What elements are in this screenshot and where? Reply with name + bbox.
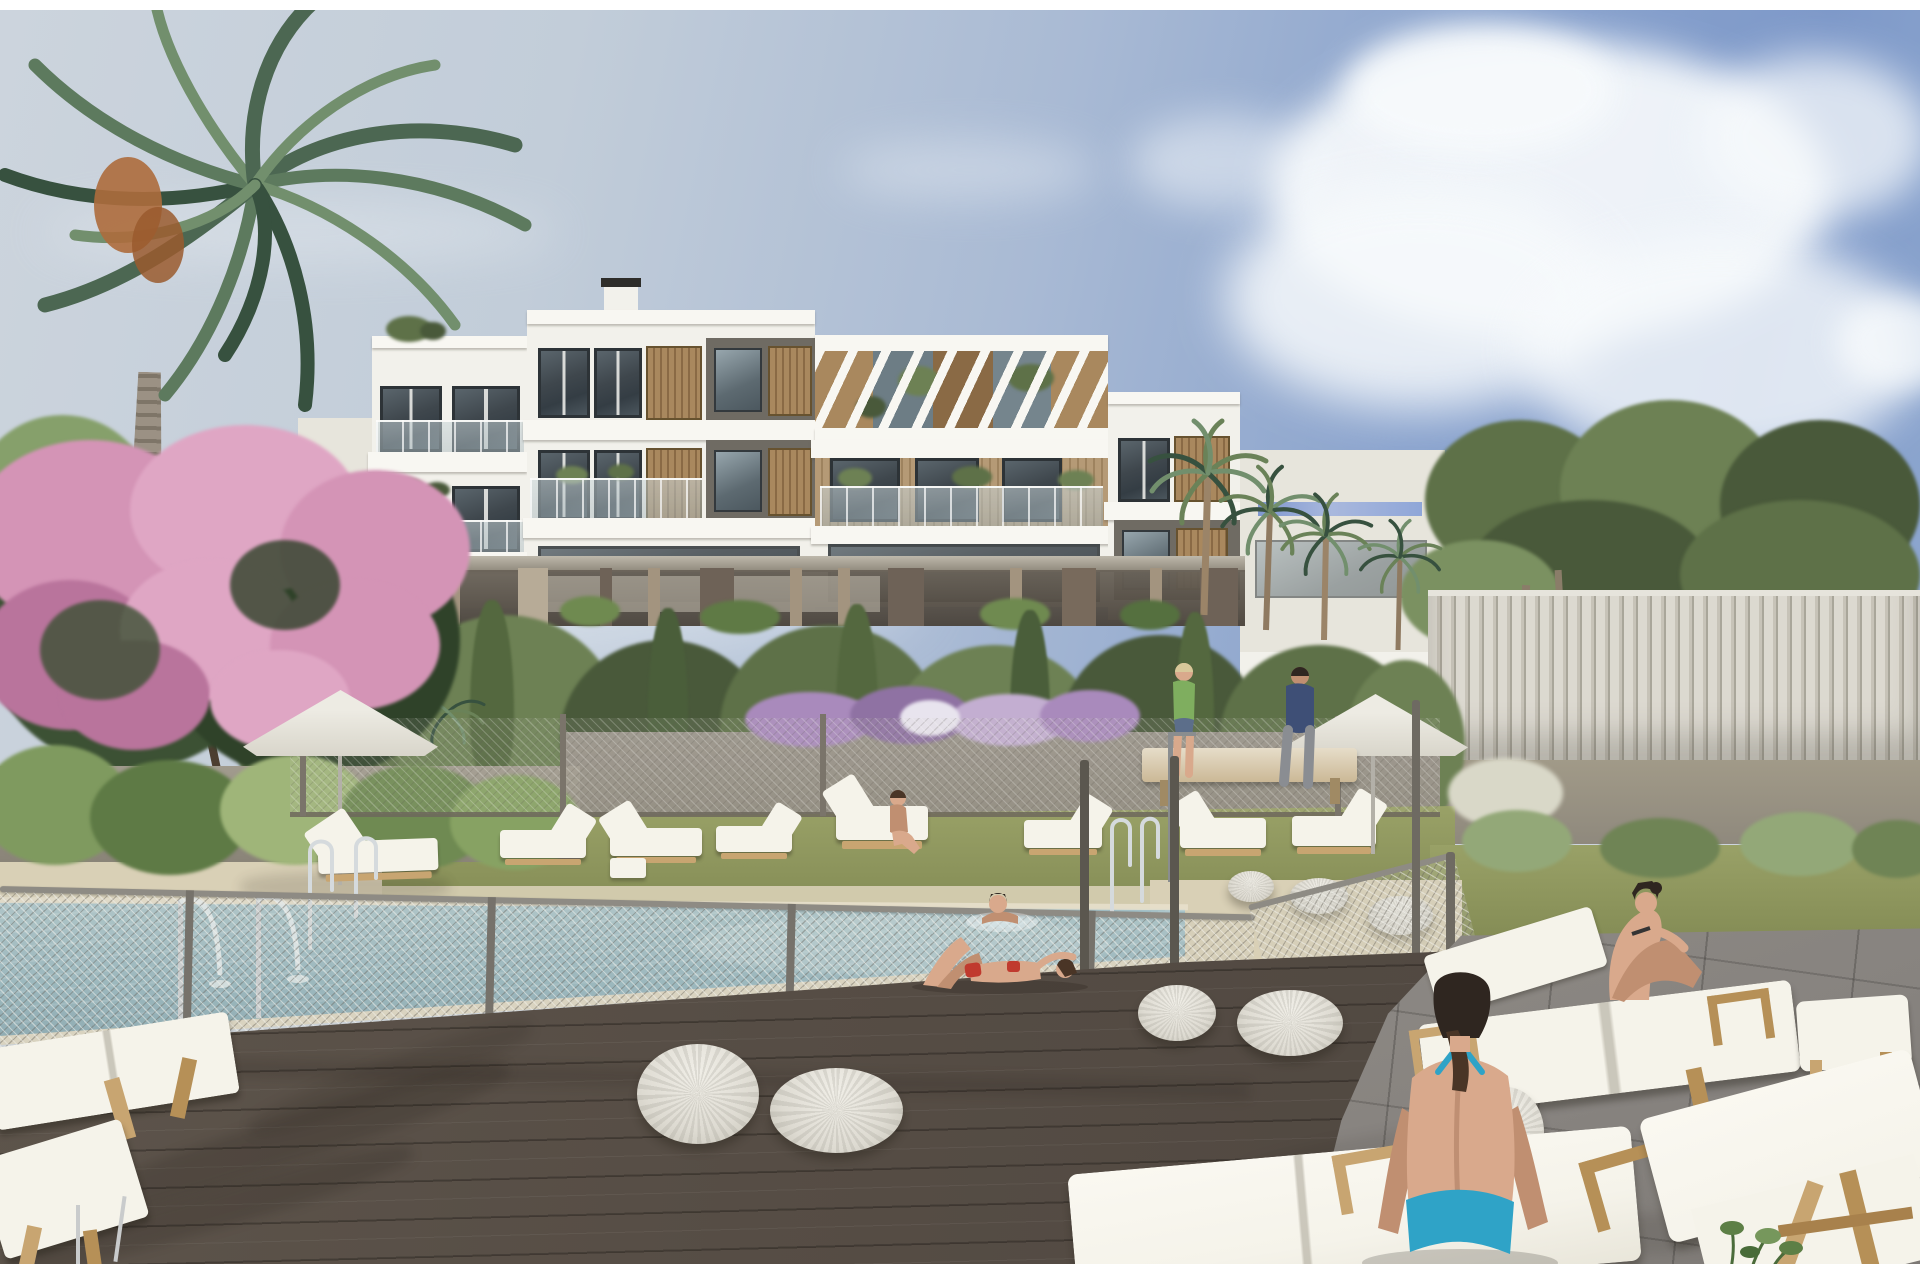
agave-plant <box>1600 818 1720 878</box>
fence-post <box>820 714 826 816</box>
pool-ladder-mid <box>1100 805 1170 925</box>
pergola-rafters <box>815 351 1108 435</box>
floor-band <box>523 518 819 538</box>
person-lying-red-bikini <box>905 915 1095 995</box>
lounger-ottoman <box>610 858 646 878</box>
window <box>714 348 762 412</box>
person-bench-blue <box>1252 662 1342 802</box>
person-bench-green <box>1146 658 1218 798</box>
agave-plant <box>1462 810 1572 872</box>
slat-fence-cap <box>1428 590 1920 596</box>
pergola-top-beam <box>815 335 1108 351</box>
palm-tree-left <box>0 0 720 500</box>
pergola-bottom-beam <box>815 428 1108 440</box>
fence-post <box>560 714 566 816</box>
shower-arm <box>1168 732 1196 736</box>
balcony-railing <box>820 486 1103 528</box>
poolside-render-scene <box>0 0 1920 1280</box>
sun-lounger <box>610 828 702 856</box>
balcony-plant <box>838 468 872 488</box>
pillar <box>888 568 924 626</box>
woven-pouf <box>770 1068 903 1153</box>
wood-slat-panel <box>768 448 812 516</box>
ground-shrub <box>560 596 620 626</box>
parapet <box>1108 392 1240 404</box>
woven-pouf <box>1138 985 1216 1041</box>
sun-lounger <box>1180 818 1266 848</box>
cloud <box>1700 55 1920 220</box>
top-white-strip <box>0 0 1920 10</box>
pillar <box>790 568 802 626</box>
woven-pouf <box>1228 871 1274 902</box>
bottom-white-strip <box>0 1264 1920 1280</box>
bougainvillea-foliage <box>40 600 160 700</box>
person-kneehug <box>1552 876 1717 1016</box>
lounger-arm-wood <box>1707 988 1775 1046</box>
woven-pouf <box>637 1044 759 1144</box>
sun-lounger <box>500 830 586 858</box>
floor-band <box>811 440 1112 458</box>
window <box>714 450 762 512</box>
sun-lounger <box>716 826 792 852</box>
slat-fence-panel <box>1428 592 1920 764</box>
sun-lounger <box>1292 816 1376 846</box>
bougainvillea-foliage <box>230 540 340 630</box>
ground-shrub <box>700 600 780 634</box>
person-seated-small <box>868 786 928 864</box>
wood-slat-panel <box>768 346 812 416</box>
agave-plant <box>1740 812 1860 876</box>
balcony-plant <box>952 466 992 488</box>
cloud <box>1130 115 1320 210</box>
sun-lounger <box>1024 820 1102 848</box>
cloud-wisp <box>840 140 1100 200</box>
woven-pouf <box>1237 990 1343 1056</box>
person-foreground-blue-bikini <box>1350 958 1570 1280</box>
pillar <box>1062 568 1096 626</box>
cloud <box>1345 25 1615 155</box>
floor-band <box>811 526 1112 544</box>
